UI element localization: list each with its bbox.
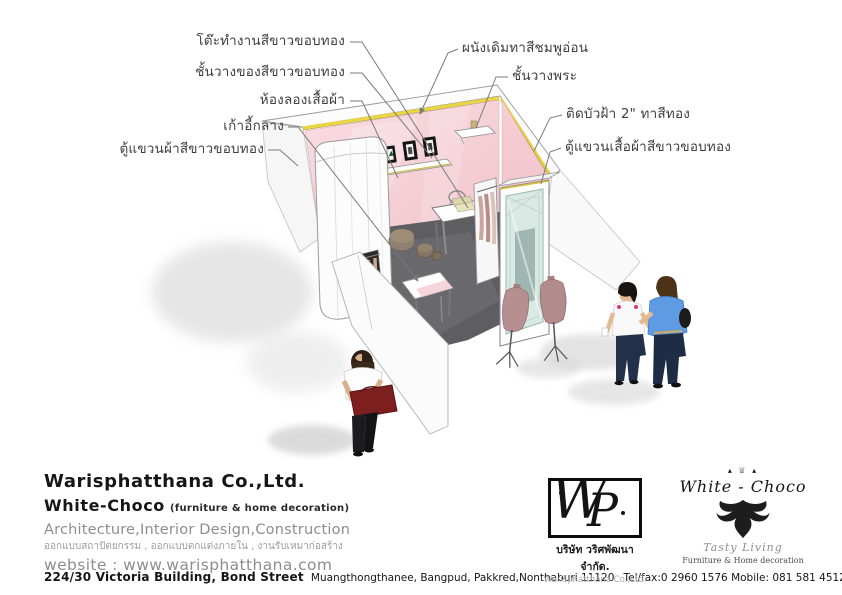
wp-dot	[559, 491, 563, 495]
shopper-women	[602, 276, 691, 388]
label-shrine-shelf: ชั้นวางพระ	[512, 68, 577, 85]
brand-suffix: (furniture & home decoration)	[170, 503, 349, 514]
white-choco-wordmark: White - Choco	[668, 477, 818, 496]
address-row: 224/30 Victoria Building, Bond Street Mu…	[44, 566, 824, 585]
room-sketch-canvas	[0, 0, 842, 465]
tel-fax-mobile: Tel/fax:0 2960 1576 Mobile: 081 581 4512	[624, 572, 842, 584]
company-info-block: Warisphatthana Co.,Ltd. White-Choco (fur…	[44, 471, 350, 574]
brand-line: White-Choco (furniture & home decoration…	[44, 496, 350, 515]
woman-white-shirt	[602, 282, 649, 385]
crown-ornament-icon: ▴ ♕ ▴	[668, 466, 818, 476]
services-english: Architecture,Interior Design,Constructio…	[44, 522, 350, 538]
services-thai: ออกแบบสถาปัตยกรรม , ออกแบบตกแต่งภายใน , …	[44, 539, 350, 554]
damask-ornament-icon	[713, 498, 773, 540]
company-name: Warisphatthana Co.,Ltd.	[44, 471, 350, 492]
wp-monogram-p: P	[587, 487, 618, 533]
right-hanging-wardrobe	[474, 178, 499, 284]
wp-company-thai: บริษัท วริศพัฒนา จำกัด.	[542, 541, 648, 575]
address-main: 224/30 Victoria Building, Bond Street	[44, 570, 304, 584]
label-shelf: ชั้นวางของสีขาวขอบทอง	[195, 64, 345, 81]
label-right-wardrobe: ตู้แขวนเสื้อผ้าสีขาวขอบทอง	[565, 139, 731, 156]
wp-logo: W P บริษัท วริศพัฒนา จำกัด. Warisphattha…	[542, 478, 648, 585]
wp-dot	[621, 511, 625, 515]
label-work-desk: โต๊ะทำงานสีขาวขอบทอง	[196, 33, 345, 50]
design-presentation-board: โต๊ะทำงานสีขาวขอบทอง ชั้นวางของสีขาวขอบท…	[0, 0, 842, 595]
label-gold-cornice: ติดบัวฝ้า 2" ทาสีทอง	[566, 106, 690, 123]
tagline: Tasty Living	[668, 541, 818, 554]
wp-monogram-icon: W P	[548, 478, 642, 538]
label-center-bench: เก้าอี้กลาง	[223, 118, 284, 135]
wp-company-english: Warisphatthana Co.,Ltd.	[542, 575, 648, 585]
brand-name: White-Choco	[44, 496, 165, 515]
white-choco-logo: ▴ ♕ ▴ White - Choco Tasty Living Furnitu…	[668, 466, 818, 565]
label-left-wardrobe: ตู้แขวนผ้าสีขาวขอบทอง	[119, 141, 264, 158]
label-pink-wall: ผนังเดิมทาสีชมพูอ่อน	[462, 40, 588, 57]
label-fitting-room: ห้องลองเสื้อผ้า	[260, 92, 345, 109]
woman-blue-shirt	[640, 276, 691, 388]
logo-subtitle: Furniture & Home decoration	[668, 556, 818, 565]
